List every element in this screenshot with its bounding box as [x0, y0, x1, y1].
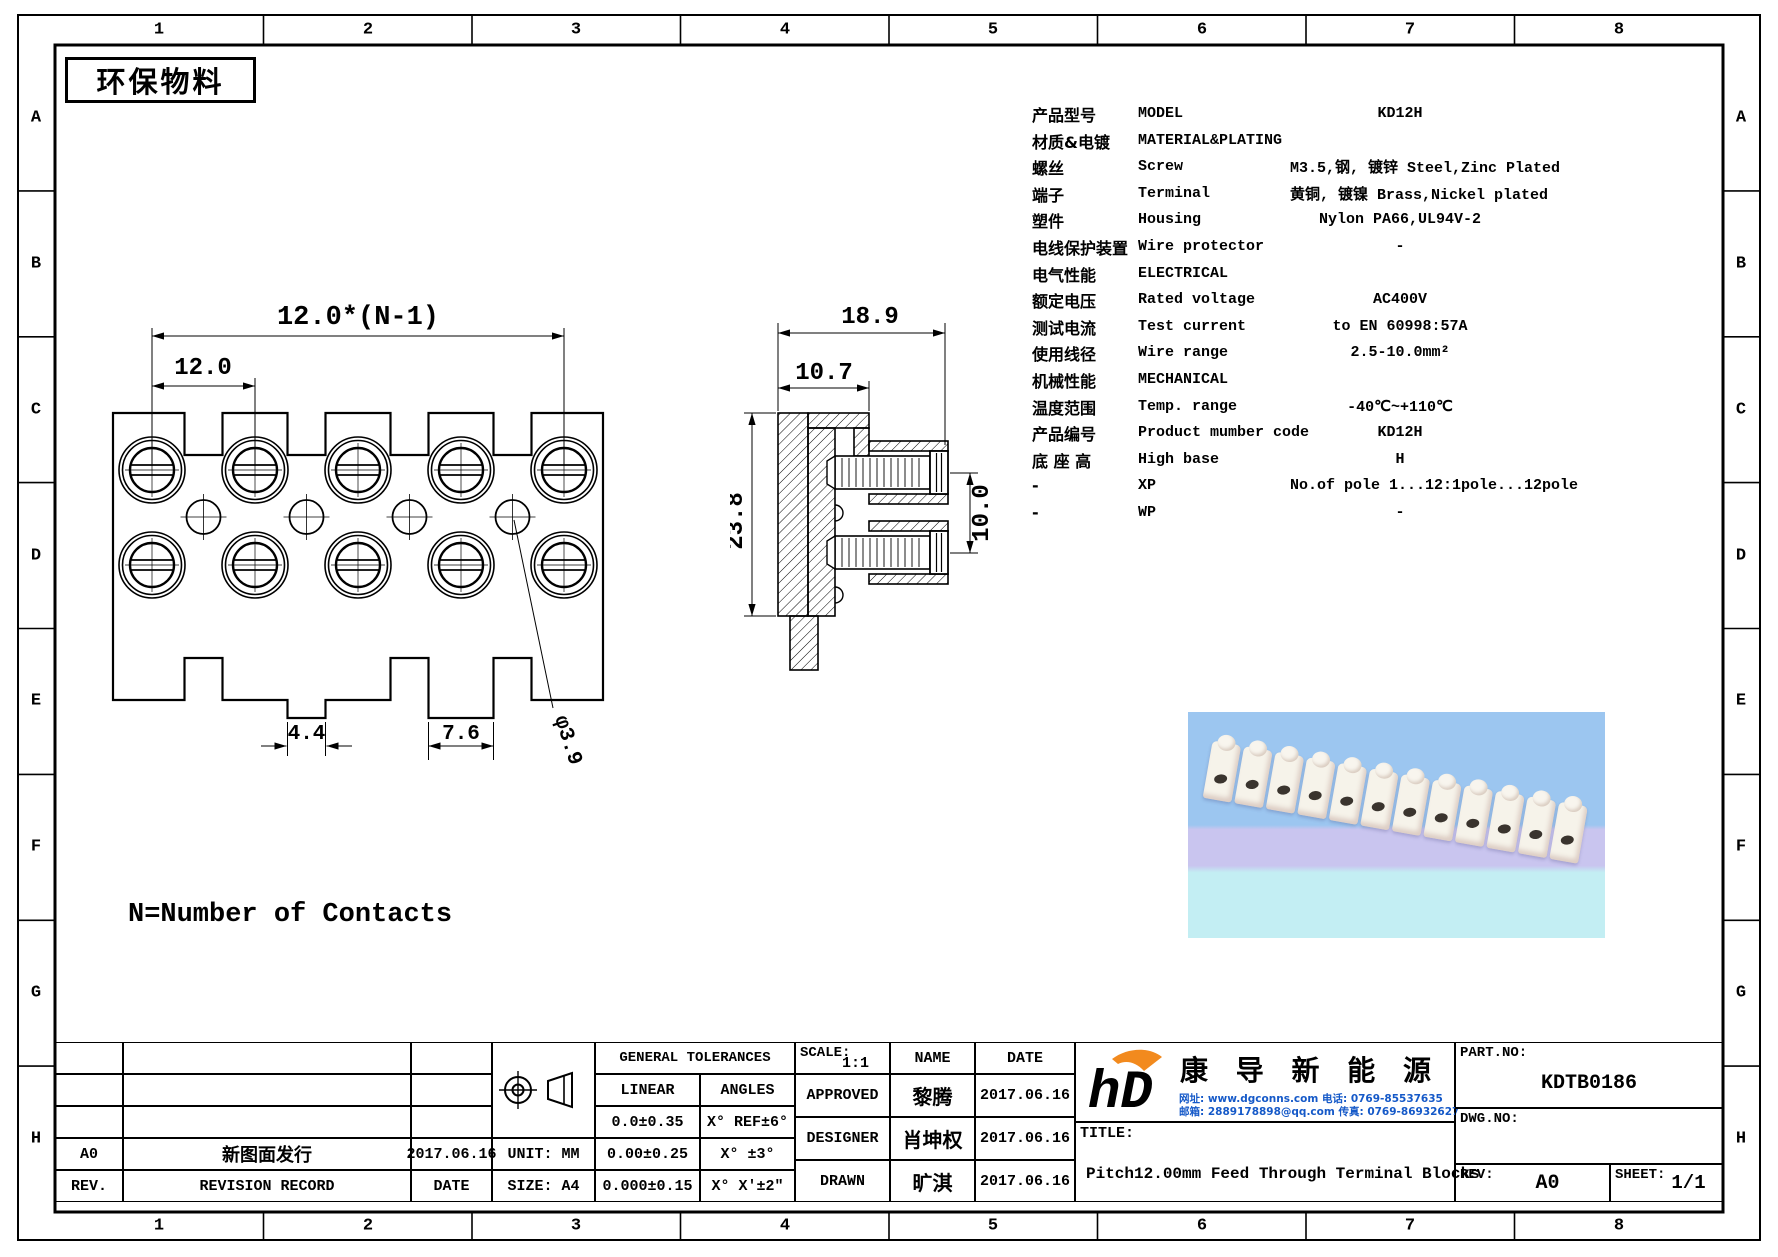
grid-col-label: 5	[988, 1217, 998, 1236]
grid-col-label: 6	[1197, 1217, 1207, 1236]
tolerance-linear: 0.000±0.15	[595, 1170, 700, 1202]
grid-col-label: 8	[1614, 21, 1624, 40]
dim-inner-width: 10.7	[795, 360, 853, 387]
approved-role: APPROVED	[795, 1074, 890, 1117]
spec-val: 黄铜, 镀镍 Brass,Nickel plated	[1255, 183, 1510, 204]
spec-en: ELECTRICAL	[1138, 265, 1290, 282]
spec-cn: 底 座 高	[1032, 448, 1138, 472]
section-screw	[827, 531, 948, 574]
eco-material-stamp: 环保物料	[65, 57, 256, 103]
dim-pitch-total: 12.0*(N-1)	[277, 303, 439, 333]
spec-row: -WP-	[1032, 499, 1510, 526]
spec-row: 塑件HousingNylon PA66,UL94V-2	[1032, 206, 1510, 233]
spec-row: 螺丝ScrewM3.5,钢, 镀锌 Steel,Zinc Plated	[1032, 153, 1510, 180]
spec-val: AC400V	[1255, 291, 1510, 308]
spec-cn: 塑件	[1032, 208, 1138, 232]
section-screw	[827, 451, 948, 494]
revision-date-header: DATE	[411, 1170, 492, 1202]
product-photo	[1188, 712, 1605, 938]
grid-row-label: H	[31, 1130, 41, 1149]
drawn-date: 2017.06.16	[975, 1160, 1075, 1202]
dim-hole-dia: φ3.9	[548, 713, 585, 768]
spec-val: M3.5,钢, 镀锌 Steel,Zinc Plated	[1255, 156, 1510, 177]
grid-col-label: 7	[1405, 1217, 1415, 1236]
side-section-view: 18.9 10.7 23.8 10.0	[730, 295, 1010, 690]
revision-record-value: 新图面发行	[123, 1138, 411, 1170]
grid-col-label: 6	[1197, 21, 1207, 40]
name-header: NAME	[890, 1042, 975, 1074]
spec-cn: 额定电压	[1032, 288, 1138, 312]
date-header: DATE	[975, 1042, 1075, 1074]
spec-cn: 螺丝	[1032, 155, 1138, 179]
contacts-note: N=Number of Contacts	[128, 900, 452, 930]
spec-row: 额定电压Rated voltageAC400V	[1032, 286, 1510, 313]
spec-row: -XPNo.of pole 1...12:1pole...12pole	[1032, 472, 1510, 499]
spec-cn: 电气性能	[1032, 262, 1138, 286]
grid-row-label: H	[1736, 1130, 1746, 1149]
spec-en: MATERIAL&PLATING	[1138, 132, 1290, 149]
spec-row: 电气性能ELECTRICAL	[1032, 260, 1510, 287]
spec-row: 底 座 高High baseH	[1032, 446, 1510, 473]
approved-name: 黎腾	[890, 1074, 975, 1117]
revision-date-value: 2017.06.16	[411, 1138, 492, 1170]
spec-cn: 端子	[1032, 182, 1138, 206]
spec-row: 机械性能MECHANICAL	[1032, 366, 1510, 393]
grid-row-label: C	[1736, 401, 1746, 420]
grid-row-label: B	[31, 255, 41, 274]
dwg-no-cell: DWG.NO:	[1455, 1108, 1723, 1164]
grid-col-label: 4	[780, 1217, 790, 1236]
grid-row-label: A	[1736, 109, 1746, 128]
terminal-strip-image	[1201, 740, 1599, 873]
designer-date: 2017.06.16	[975, 1117, 1075, 1160]
spec-val: H	[1255, 451, 1510, 468]
spec-cn: -	[1032, 503, 1138, 522]
title-cell: TITLE: Pitch12.00mm Feed Through Termina…	[1075, 1122, 1455, 1202]
drawn-name: 旷淇	[890, 1160, 975, 1202]
tolerances-header: GENERAL TOLERANCES	[595, 1042, 795, 1074]
angles-header: ANGLES	[700, 1074, 795, 1106]
grid-col-label: 5	[988, 21, 998, 40]
svg-text:hD: hD	[1088, 1063, 1153, 1119]
rev-value: A0	[1535, 1172, 1559, 1195]
spec-val: No.of pole 1...12:1pole...12pole	[1255, 477, 1510, 494]
spec-val: -	[1255, 238, 1510, 255]
grid-col-label: 2	[363, 21, 373, 40]
designer-name: 肖坤权	[890, 1117, 975, 1160]
grid-row-label: G	[31, 984, 41, 1003]
tolerance-linear: 0.0±0.35	[595, 1106, 700, 1138]
grid-row-label: B	[1736, 255, 1746, 274]
grid-col-label: 3	[571, 21, 581, 40]
dim-tab: 7.6	[442, 723, 480, 746]
spec-row: 产品编号Product mumber codeKD12H	[1032, 419, 1510, 446]
front-view-drawing: 12.0*(N-1) 12.0 4.4 7.6 φ3.9	[85, 290, 625, 790]
spec-val: 2.5-10.0mm²	[1255, 344, 1510, 361]
sheet-value: 1/1	[1671, 1172, 1705, 1194]
spec-val: to EN 60998:57A	[1255, 318, 1510, 335]
rev-label: REV:	[1460, 1167, 1494, 1183]
grid-col-label: 2	[363, 1217, 373, 1236]
spec-val: -40℃~+110℃	[1255, 397, 1510, 416]
spec-cn: 机械性能	[1032, 368, 1138, 392]
spec-en: MECHANICAL	[1138, 371, 1290, 388]
dim-pitch: 12.0	[174, 355, 232, 382]
company-logo-cell: hD 康 导 新 能 源 网址: www.dgconns.com 电话: 076…	[1075, 1042, 1455, 1122]
grid-row-label: A	[31, 109, 41, 128]
sheet-label: SHEET:	[1615, 1167, 1665, 1183]
grid-col-label: 1	[154, 1217, 164, 1236]
spec-row: 材质&电镀MATERIAL&PLATING	[1032, 127, 1510, 154]
spec-cn: 产品编号	[1032, 421, 1138, 445]
spec-cn: 使用线径	[1032, 341, 1138, 365]
drawing-sheet: 1 2 3 4 5 6 7 8 1 2 3 4 5 6 7 8 A B C D …	[0, 0, 1778, 1257]
grid-col-label: 8	[1614, 1217, 1624, 1236]
company-logo-icon: hD	[1082, 1045, 1177, 1119]
designer-role: DESIGNER	[795, 1117, 890, 1160]
dim-width: 18.9	[841, 304, 899, 331]
title-label: TITLE:	[1080, 1125, 1134, 1142]
spec-val: Nylon PA66,UL94V-2	[1255, 211, 1510, 228]
company-contact: 网址: www.dgconns.com 电话: 0769-85537635 邮箱…	[1179, 1093, 1454, 1119]
spec-row: 产品型号MODELKD12H	[1032, 100, 1510, 127]
grid-col-label: 1	[154, 21, 164, 40]
revision-record-header: REVISION RECORD	[123, 1170, 411, 1202]
grid-col-label: 7	[1405, 21, 1415, 40]
tolerance-angle: X° ±3°	[700, 1138, 795, 1170]
scale-cell: SCALE: 1:1	[795, 1042, 890, 1074]
linear-header: LINEAR	[595, 1074, 700, 1106]
spec-val: KD12H	[1255, 105, 1510, 122]
spec-row: 温度范围Temp. range-40℃~+110℃	[1032, 393, 1510, 420]
dim-height: 23.8	[730, 492, 750, 550]
drawn-role: DRAWN	[795, 1160, 890, 1202]
grid-col-label: 4	[780, 21, 790, 40]
spec-row: 使用线径Wire range2.5-10.0mm²	[1032, 339, 1510, 366]
spec-cn: 测试电流	[1032, 315, 1138, 339]
projection-symbol-cell	[492, 1042, 595, 1138]
projection-angle-icon	[498, 1068, 590, 1112]
spec-row: 电线保护装置Wire protector-	[1032, 233, 1510, 260]
grid-row-label: F	[1736, 838, 1746, 857]
spec-row: 端子Terminal黄铜, 镀镍 Brass,Nickel plated	[1032, 180, 1510, 207]
part-no-label: PART.NO:	[1460, 1045, 1527, 1061]
spec-cn: 材质&电镀	[1032, 129, 1138, 153]
rev-value: A0	[55, 1138, 123, 1170]
contact-line2: 邮箱: 2889178898@qq.com 传真: 0769-86932627	[1179, 1106, 1454, 1119]
spec-cn: -	[1032, 476, 1138, 495]
tolerance-linear: 0.00±0.25	[595, 1138, 700, 1170]
spec-cn: 温度范围	[1032, 395, 1138, 419]
tolerance-angle: X° REF±6°	[700, 1106, 795, 1138]
company-name: 康 导 新 能 源	[1180, 1049, 1440, 1089]
sheet-cell: SHEET: 1/1	[1610, 1164, 1723, 1202]
unit-cell: UNIT: MM	[492, 1138, 595, 1170]
rev-cell: REV: A0	[1455, 1164, 1610, 1202]
grid-row-label: C	[31, 401, 41, 420]
spec-row: 测试电流Test currentto EN 60998:57A	[1032, 313, 1510, 340]
spec-cn: 电线保护装置	[1032, 235, 1138, 259]
grid-row-label: G	[1736, 984, 1746, 1003]
dim-screw-span: 10.0	[969, 484, 996, 542]
drawing-title: Pitch12.00mm Feed Through Terminal Block…	[1086, 1165, 1480, 1183]
part-no-value: KDTB0186	[1541, 1072, 1637, 1095]
dim-gap: 4.4	[288, 723, 326, 746]
contact-line1: 网址: www.dgconns.com 电话: 0769-85537635	[1179, 1093, 1454, 1106]
grid-row-label: D	[31, 547, 41, 566]
dwg-no-label: DWG.NO:	[1460, 1111, 1519, 1127]
rev-header: REV.	[55, 1170, 123, 1202]
approved-date: 2017.06.16	[975, 1074, 1075, 1117]
scale-label: SCALE:	[800, 1045, 850, 1061]
spec-cn: 产品型号	[1032, 102, 1138, 126]
grid-row-label: E	[31, 692, 41, 711]
grid-row-label: E	[1736, 692, 1746, 711]
grid-row-label: F	[31, 838, 41, 857]
spec-val: -	[1255, 504, 1510, 521]
tolerance-angle: X° X'±2"	[700, 1170, 795, 1202]
grid-row-label: D	[1736, 547, 1746, 566]
size-cell: SIZE: A4	[492, 1170, 595, 1202]
grid-col-label: 3	[571, 1217, 581, 1236]
spec-val: KD12H	[1255, 424, 1510, 441]
part-no-cell: PART.NO: KDTB0186	[1455, 1042, 1723, 1108]
